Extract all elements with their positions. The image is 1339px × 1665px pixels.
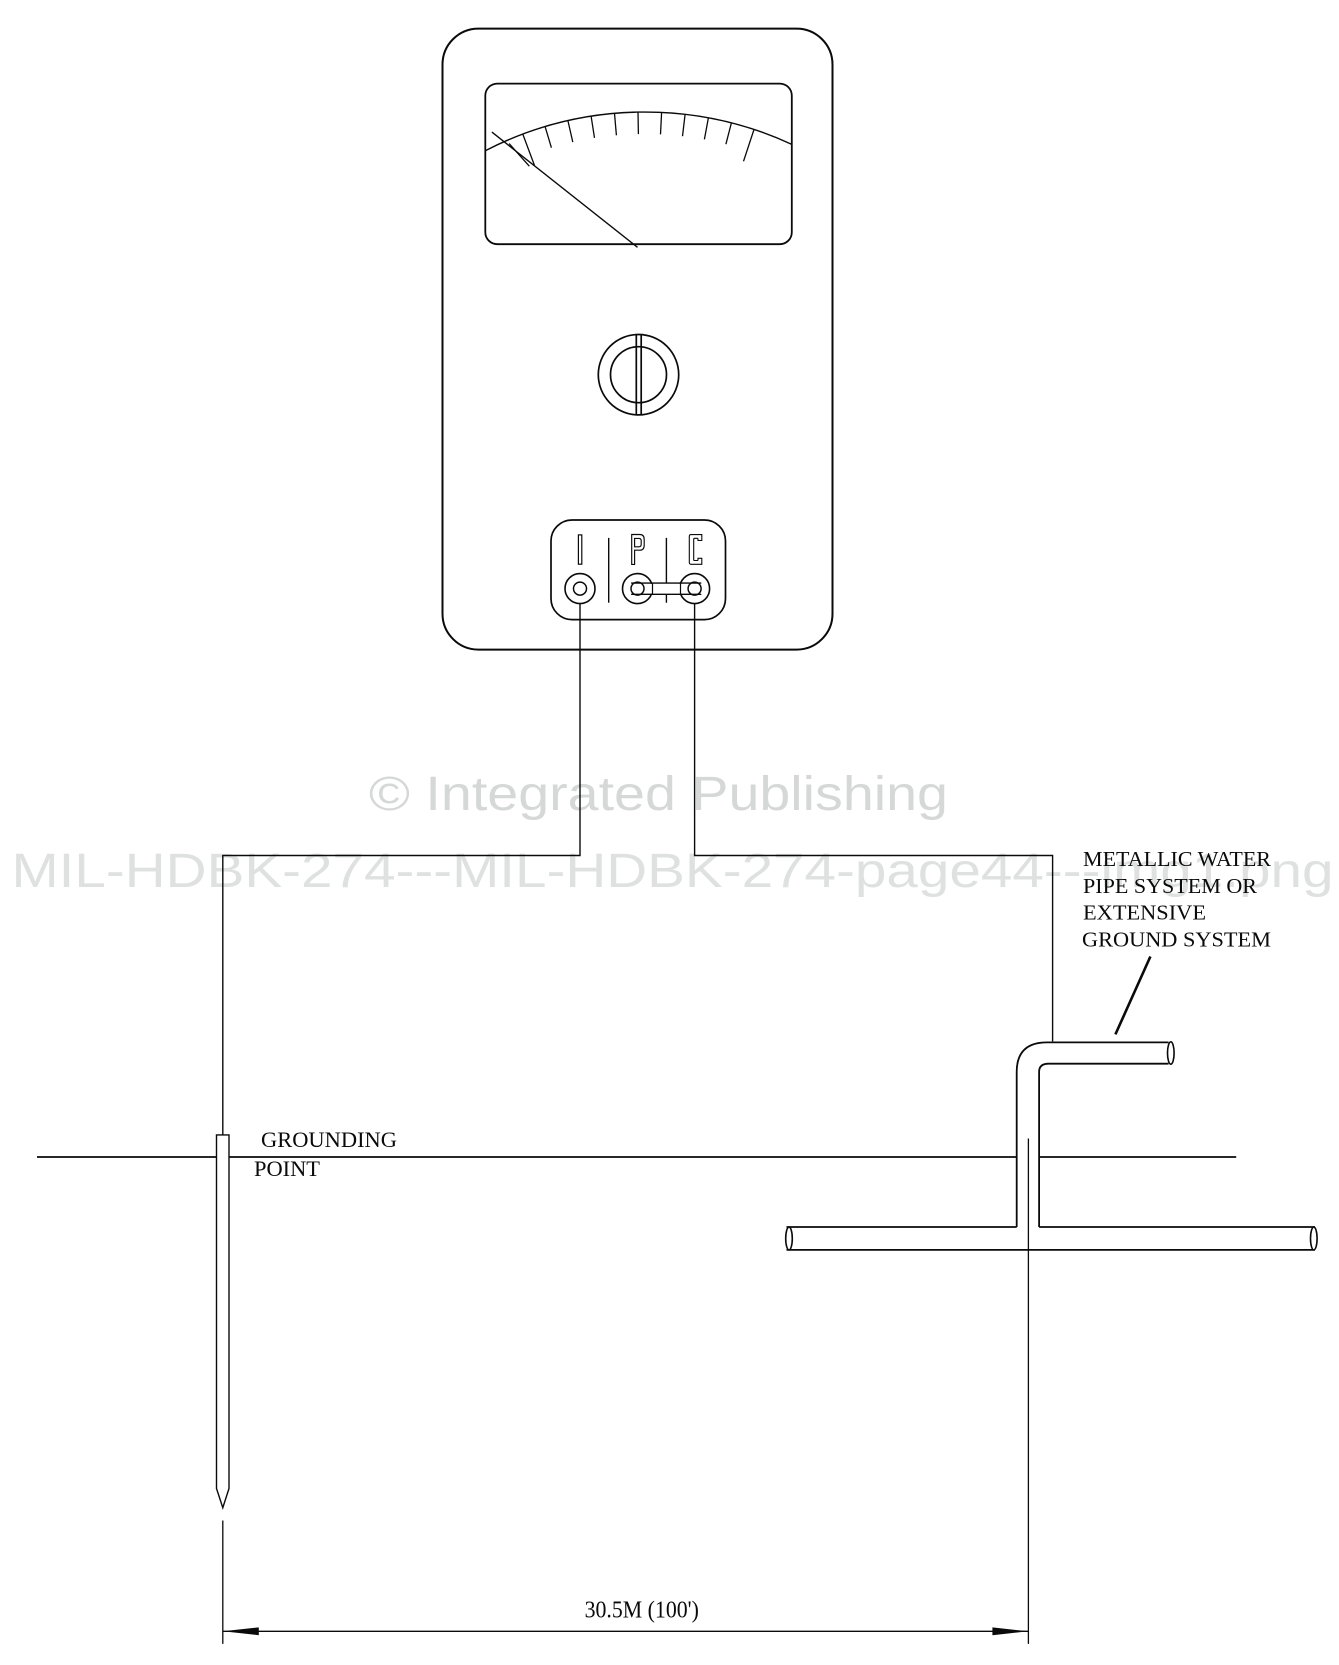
svg-text:PIPE SYSTEM OR: PIPE SYSTEM OR xyxy=(1083,874,1257,898)
svg-text:30.5M (100'): 30.5M (100') xyxy=(585,1597,699,1623)
svg-text:METALLIC WATER: METALLIC WATER xyxy=(1083,847,1271,871)
svg-text:GROUNDING: GROUNDING xyxy=(261,1127,397,1152)
svg-text:GROUND SYSTEM: GROUND SYSTEM xyxy=(1082,927,1271,951)
svg-text:© Integrated Publishing: © Integrated Publishing xyxy=(369,767,948,821)
svg-text:POINT: POINT xyxy=(254,1156,321,1181)
svg-text:EXTENSIVE: EXTENSIVE xyxy=(1083,901,1206,925)
